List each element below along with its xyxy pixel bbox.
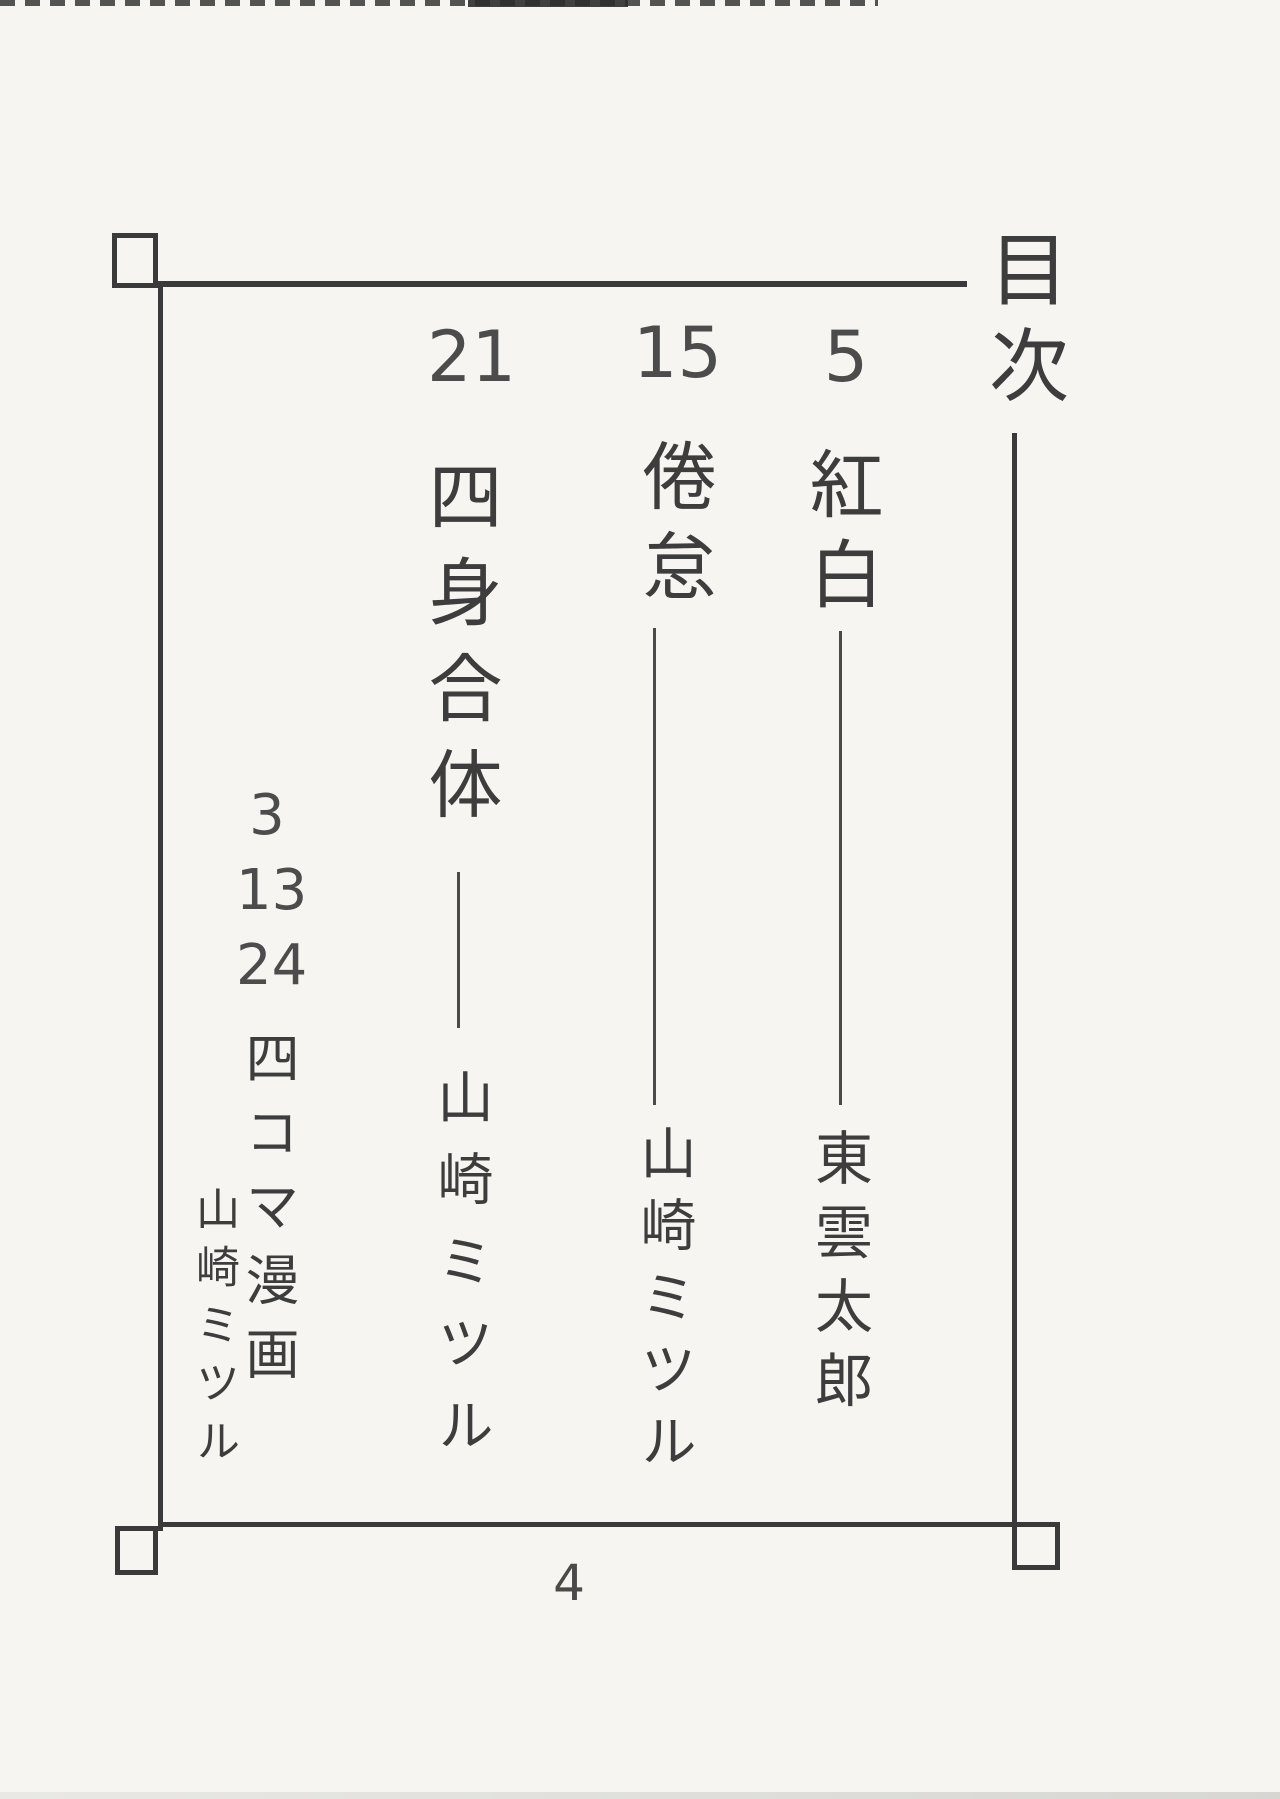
frame-right-line — [1012, 433, 1017, 1570]
entry-page-number: 15 — [633, 318, 695, 388]
entry-author: 山崎ミツル — [635, 1124, 691, 1484]
entry-leader-line — [839, 631, 842, 1105]
frame-left-line — [158, 286, 163, 1531]
toc-page: 目次 5 紅白 東雲太郎 15 倦怠 山崎ミツル 21 四身合体 山崎ミツル 3… — [0, 0, 1280, 1799]
entry-title: 紅白 — [803, 446, 877, 626]
corner-square-top-left — [112, 233, 158, 288]
scan-artifact-top-solid — [468, 0, 628, 7]
entry-title: 四コマ漫画 — [240, 1030, 294, 1400]
entry-page-number: 13 — [236, 853, 298, 928]
scan-artifact-top — [0, 0, 878, 6]
entry-page-number: 3 — [236, 778, 298, 853]
entry-page-number: 24 — [236, 928, 298, 1003]
frame-bottom-line — [158, 1522, 1017, 1527]
scan-artifact-bottom — [0, 1792, 1280, 1799]
entry-author: 山崎ミツル — [191, 1186, 235, 1476]
entry-title: 四身合体 — [422, 458, 496, 842]
entry-title: 倦怠 — [636, 438, 710, 618]
entry-author: 山崎ミツル — [432, 1068, 488, 1478]
entry-leader-line — [457, 872, 460, 1028]
entry-page-number: 5 — [816, 322, 876, 392]
entry-author: 東雲太郎 — [810, 1128, 868, 1424]
frame-top-line — [158, 281, 967, 287]
folio-page-number: 4 — [544, 1558, 594, 1608]
entry-leader-line — [653, 628, 656, 1105]
corner-square-bottom-left — [115, 1526, 158, 1575]
entry-page-number-list: 3 13 24 — [236, 778, 298, 1003]
corner-square-bottom-right — [1012, 1522, 1060, 1570]
entry-page-number: 21 — [427, 322, 489, 392]
page-title: 目次 — [982, 228, 1062, 420]
